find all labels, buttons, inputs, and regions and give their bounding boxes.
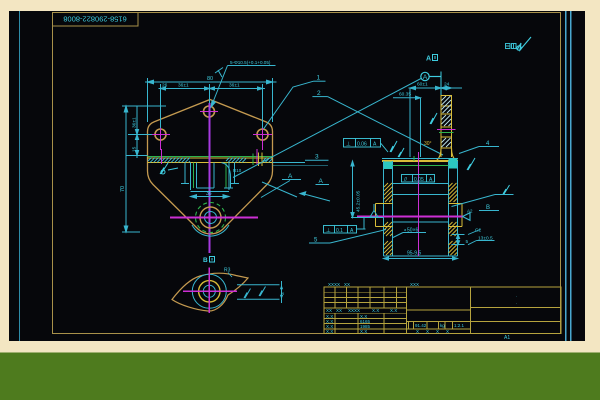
svg-text:5: 5 <box>466 239 469 245</box>
svg-text:1: 1 <box>317 75 321 82</box>
svg-text:60±1: 60±1 <box>417 82 428 88</box>
svg-text:6158-290822-8008: 6158-290822-8008 <box>63 15 126 24</box>
svg-text:XXX: XXX <box>410 282 419 287</box>
svg-text:1:2.1: 1:2.1 <box>454 323 465 328</box>
svg-text:XX: XX <box>344 282 350 287</box>
svg-text:36: 36 <box>206 191 212 197</box>
svg-text:3: 3 <box>280 292 286 295</box>
svg-text:kg: kg <box>440 323 445 328</box>
svg-text:XXXX: XXXX <box>328 282 340 287</box>
svg-text:0.05: 0.05 <box>414 177 424 183</box>
svg-text:A2: A2 <box>467 209 473 214</box>
svg-text:45.2±0.05: 45.2±0.05 <box>356 190 362 212</box>
svg-text:.: . <box>516 300 517 305</box>
svg-text:C2: C2 <box>475 228 481 234</box>
svg-text:A: A <box>319 178 324 185</box>
svg-text:.: . <box>516 293 517 298</box>
svg-text:36±1: 36±1 <box>178 83 189 89</box>
svg-text:X: X <box>436 329 439 334</box>
svg-text:24: 24 <box>444 82 450 88</box>
svg-text:A: A <box>426 56 431 63</box>
svg-text:2: 2 <box>317 90 321 97</box>
svg-text:◐50×6: ◐50×6 <box>404 228 419 234</box>
svg-text:R3: R3 <box>224 268 231 274</box>
svg-text:0.1: 0.1 <box>336 228 343 234</box>
svg-text:0.06: 0.06 <box>357 142 367 148</box>
svg-text:5-Φ10.5(+0.1+0.05): 5-Φ10.5(+0.1+0.05) <box>230 60 271 65</box>
svg-text:60.35: 60.35 <box>399 92 411 98</box>
svg-text:15: 15 <box>132 146 138 152</box>
svg-text:X.X: X.X <box>360 329 367 334</box>
svg-text:30°: 30° <box>424 141 432 147</box>
svg-text:⊥: ⊥ <box>346 141 351 148</box>
svg-text:X.X: X.X <box>390 308 397 313</box>
svg-text:A: A <box>423 74 428 81</box>
svg-text:B: B <box>486 205 490 211</box>
svg-text:36±1: 36±1 <box>229 83 240 89</box>
svg-text:13±0.5: 13±0.5 <box>478 236 493 242</box>
svg-text:X: X <box>426 329 429 334</box>
svg-text:80: 80 <box>207 76 213 82</box>
svg-text://: // <box>404 177 408 183</box>
svg-text:26: 26 <box>162 83 168 89</box>
svg-text:X: X <box>416 329 419 334</box>
svg-text:⊥: ⊥ <box>326 227 331 234</box>
svg-text:X.X: X.X <box>326 329 333 334</box>
svg-text:95-9.5: 95-9.5 <box>407 251 421 257</box>
svg-text:X: X <box>446 329 449 334</box>
svg-text:3: 3 <box>315 154 319 161</box>
svg-text:70: 70 <box>120 186 126 192</box>
svg-text:A: A <box>288 173 293 180</box>
svg-text:91.42: 91.42 <box>415 323 427 328</box>
svg-text:B: B <box>203 257 208 264</box>
svg-text:XX: XX <box>326 308 332 313</box>
svg-text:36±1: 36±1 <box>132 117 138 128</box>
svg-text:X.X: X.X <box>372 308 379 313</box>
svg-text:R10: R10 <box>233 168 242 173</box>
svg-text:XX: XX <box>336 308 342 313</box>
svg-text:XXXX: XXXX <box>348 308 360 313</box>
svg-text:A1: A1 <box>504 335 510 341</box>
